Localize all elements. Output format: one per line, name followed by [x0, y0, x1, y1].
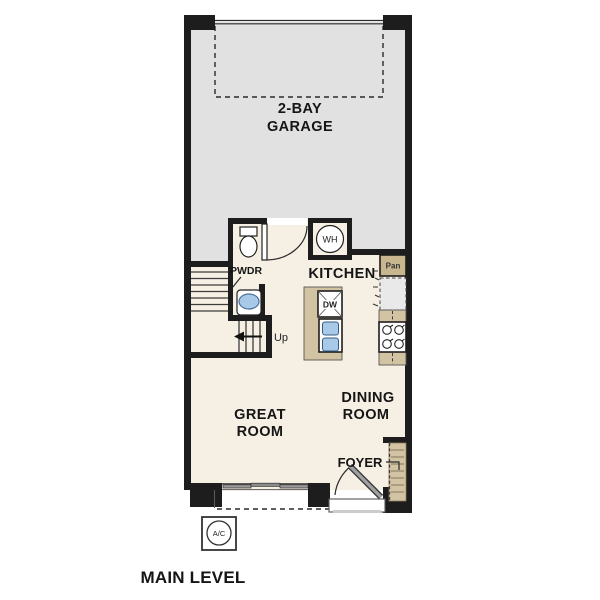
- wall-garage-stairs: [191, 261, 228, 267]
- wall-bottom-left-pier: [190, 483, 222, 507]
- stairs-up-label: Up: [274, 332, 288, 344]
- wall-wh-closet-right: [347, 218, 352, 260]
- wall-wh-closet-top: [308, 218, 352, 223]
- pantry-label: Pan: [386, 262, 401, 271]
- slider-panel: [251, 483, 280, 486]
- dishwasher-label: DW: [323, 300, 338, 310]
- wall-powder-top: [233, 218, 268, 224]
- toilet-bowl-icon: [240, 236, 257, 257]
- dining-room-label-line1: DINING: [341, 390, 394, 406]
- kitchen-door-opening: [267, 218, 307, 225]
- floor-plan-drawing: WH PWDR Up DW Pan: [0, 0, 600, 600]
- wall-wh-closet-bottom: [308, 255, 352, 260]
- island-sink-bowl-bottom: [323, 338, 339, 351]
- wall-stairs-bottom: [191, 352, 272, 358]
- foyer-closet: [389, 443, 406, 501]
- foyer-label: FOYER: [338, 455, 383, 470]
- slider-panel: [280, 485, 308, 488]
- great-room-label-line2: ROOM: [237, 424, 284, 440]
- kitchen-label: KITCHEN: [308, 266, 375, 282]
- refrigerator-icon: [380, 278, 406, 310]
- dining-room-label-line2: ROOM: [343, 407, 390, 423]
- wall-wh-closet-left: [308, 218, 313, 260]
- wall-right: [405, 15, 412, 443]
- powder-sink-icon: [239, 294, 259, 309]
- wall-closet-bottom: [389, 501, 412, 513]
- wall-left: [184, 15, 191, 490]
- great-room-label-line1: GREAT: [234, 407, 286, 423]
- wall-bottom-mid-pier: [308, 483, 330, 507]
- garage-label-line1: 2-BAY: [278, 101, 322, 117]
- kitchen-island: DW: [304, 287, 342, 360]
- powder-room-label: PWDR: [230, 265, 262, 277]
- wall-top-left-pier: [184, 15, 215, 30]
- wall-garage-kitchen-right: [352, 249, 412, 255]
- entry-step: [333, 510, 381, 513]
- ac-unit: A/C: [202, 517, 236, 550]
- slider-panel: [223, 485, 251, 488]
- ac-label: A/C: [213, 529, 226, 538]
- garage-label-line2: GARAGE: [267, 119, 333, 135]
- main-level-title: MAIN LEVEL: [141, 568, 246, 587]
- floor-plan-page: WH PWDR Up DW Pan: [0, 0, 600, 600]
- island-sink-bowl-top: [323, 322, 339, 335]
- toilet-tank-icon: [240, 227, 257, 236]
- wall-stairs-right: [266, 315, 272, 358]
- wall-closet-top: [383, 437, 412, 443]
- water-heater-label: WH: [323, 235, 338, 245]
- kitchen-door-leaf: [262, 224, 267, 260]
